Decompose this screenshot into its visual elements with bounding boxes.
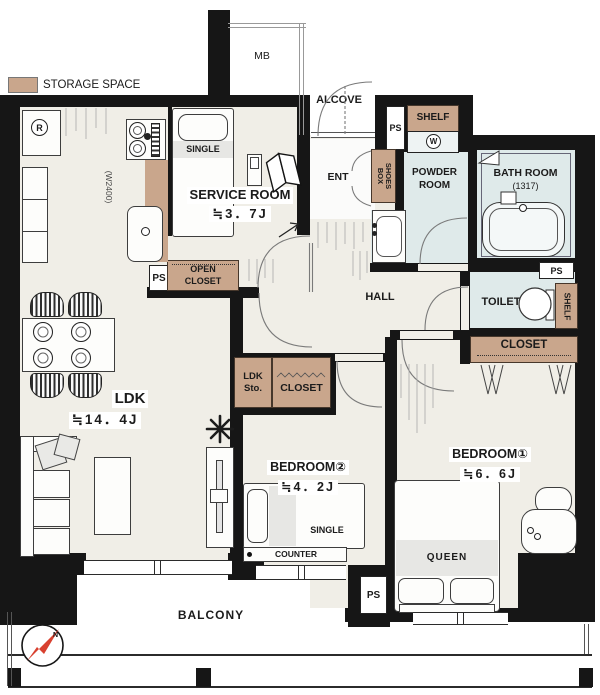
pen-icon <box>279 223 298 237</box>
hanger-rail-zigzag <box>277 373 325 377</box>
powder-door-arc <box>420 218 467 264</box>
ldk-door-arc <box>259 293 312 347</box>
bath-counter-icon <box>501 192 516 204</box>
floor-plan: PS PS PS PS SHELF W SHOES BOX SHELF OPEN… <box>0 0 600 695</box>
bedroom2-door-arc <box>337 361 382 407</box>
hanger-icon <box>481 365 571 394</box>
toilet-icon <box>519 288 554 320</box>
bath-door-icon <box>479 151 499 165</box>
compass-north-label: N <box>53 632 58 639</box>
hatch-lines <box>66 108 433 433</box>
bedroom1-door-arc <box>402 340 454 391</box>
door-arc-set <box>258 82 468 407</box>
ldk-door-leaf <box>310 243 313 292</box>
plan-annotations: N <box>0 0 600 695</box>
ent-closet-door-arcs <box>352 151 371 206</box>
plant-icon <box>207 416 233 442</box>
toilet-door-arc <box>425 287 468 330</box>
service-room-door-arc <box>258 236 310 288</box>
book-icon <box>265 150 301 192</box>
compass-icon: N <box>22 625 63 666</box>
